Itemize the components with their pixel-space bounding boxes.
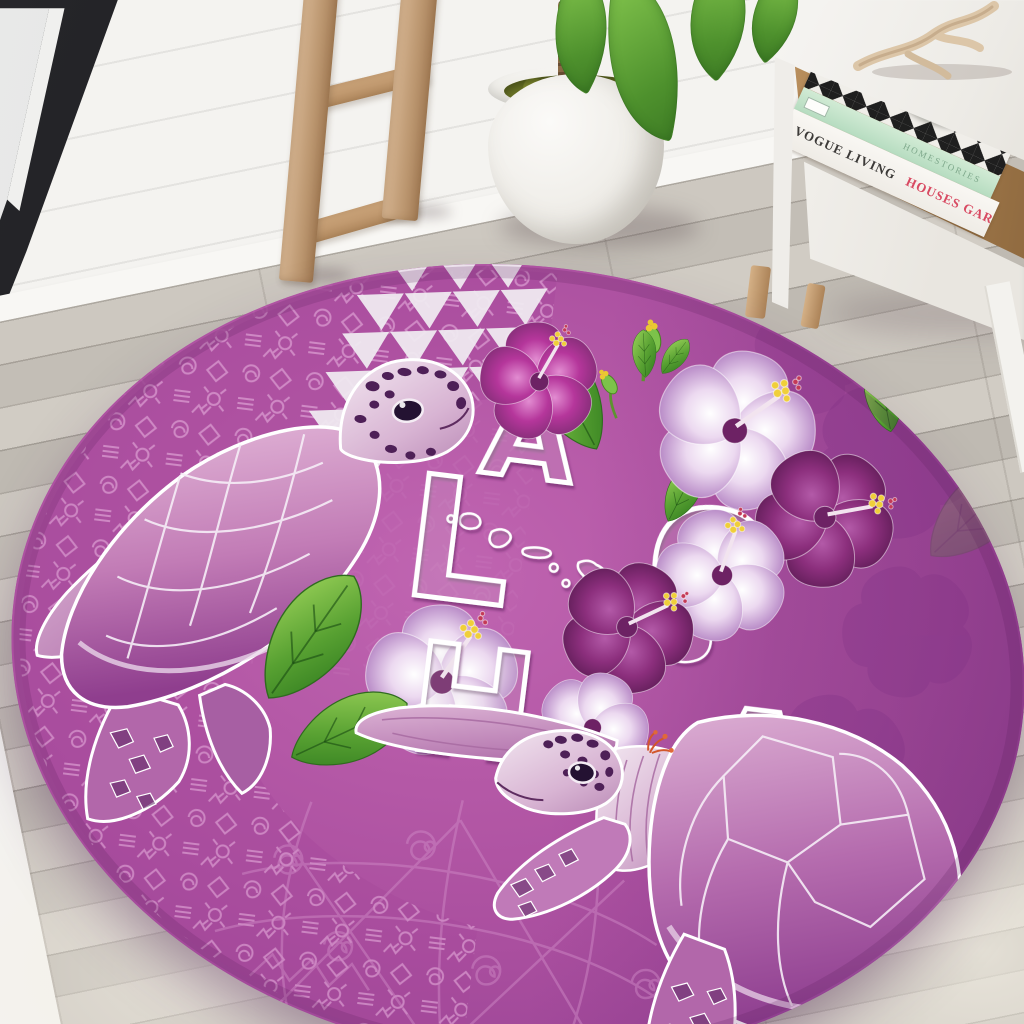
ladder-rail	[279, 0, 339, 283]
table-leg	[800, 283, 825, 329]
side-table: HOMESTORIES VOGUE LIVING HOUSES GARDENS …	[700, 0, 1024, 340]
room-scene: HOMESTORIES VOGUE LIVING HOUSES GARDENS …	[0, 0, 1024, 1024]
driftwood-decor	[850, 0, 1024, 84]
table-leg	[745, 265, 771, 319]
ladder-rail	[382, 0, 439, 221]
